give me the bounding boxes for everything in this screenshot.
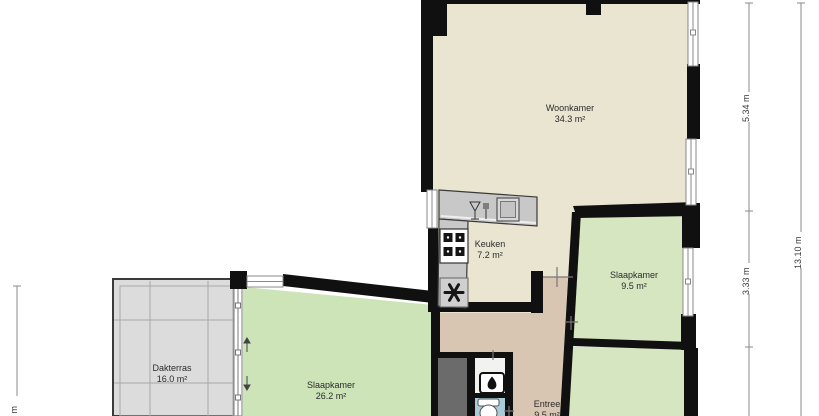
closet-dark-floor [438, 358, 467, 416]
terrace-door [234, 282, 242, 416]
wall-stub-keuken [531, 271, 543, 313]
chimney [586, 0, 601, 15]
terrace-floor [113, 279, 240, 416]
wall-closet-divider [467, 352, 475, 416]
wall-right-3 [681, 314, 696, 350]
window-right-2 [686, 139, 696, 205]
wall-right-2 [682, 203, 700, 248]
room-slaapkamer-left-floor [243, 287, 433, 416]
window-right-3 [683, 248, 693, 316]
room-bottom-right-floor [562, 347, 691, 416]
floor-plan-page: Woonkamer 34.3 m² Keuken 7.2 m² Slaapkam… [0, 0, 819, 416]
room-woonkamer-floor [430, 0, 695, 215]
floor-plan-svg [0, 0, 819, 416]
wall-right-1 [687, 64, 700, 139]
room-slaapkamer-right-floor [573, 207, 691, 344]
wall-right-4 [684, 348, 698, 416]
ventilation-fan-icon [440, 278, 468, 307]
window-slaapkamer-left [247, 276, 283, 287]
wall-top [425, 0, 700, 4]
window-right-1 [688, 2, 698, 66]
sink-icon [497, 198, 519, 221]
stove-icon [440, 229, 468, 263]
window-keuken-left [427, 190, 437, 228]
wall-corner-terrace [230, 271, 247, 289]
boiler-icon [480, 373, 504, 393]
wall-left-woonkamer [421, 0, 433, 192]
dakterras-terrace [113, 279, 250, 416]
